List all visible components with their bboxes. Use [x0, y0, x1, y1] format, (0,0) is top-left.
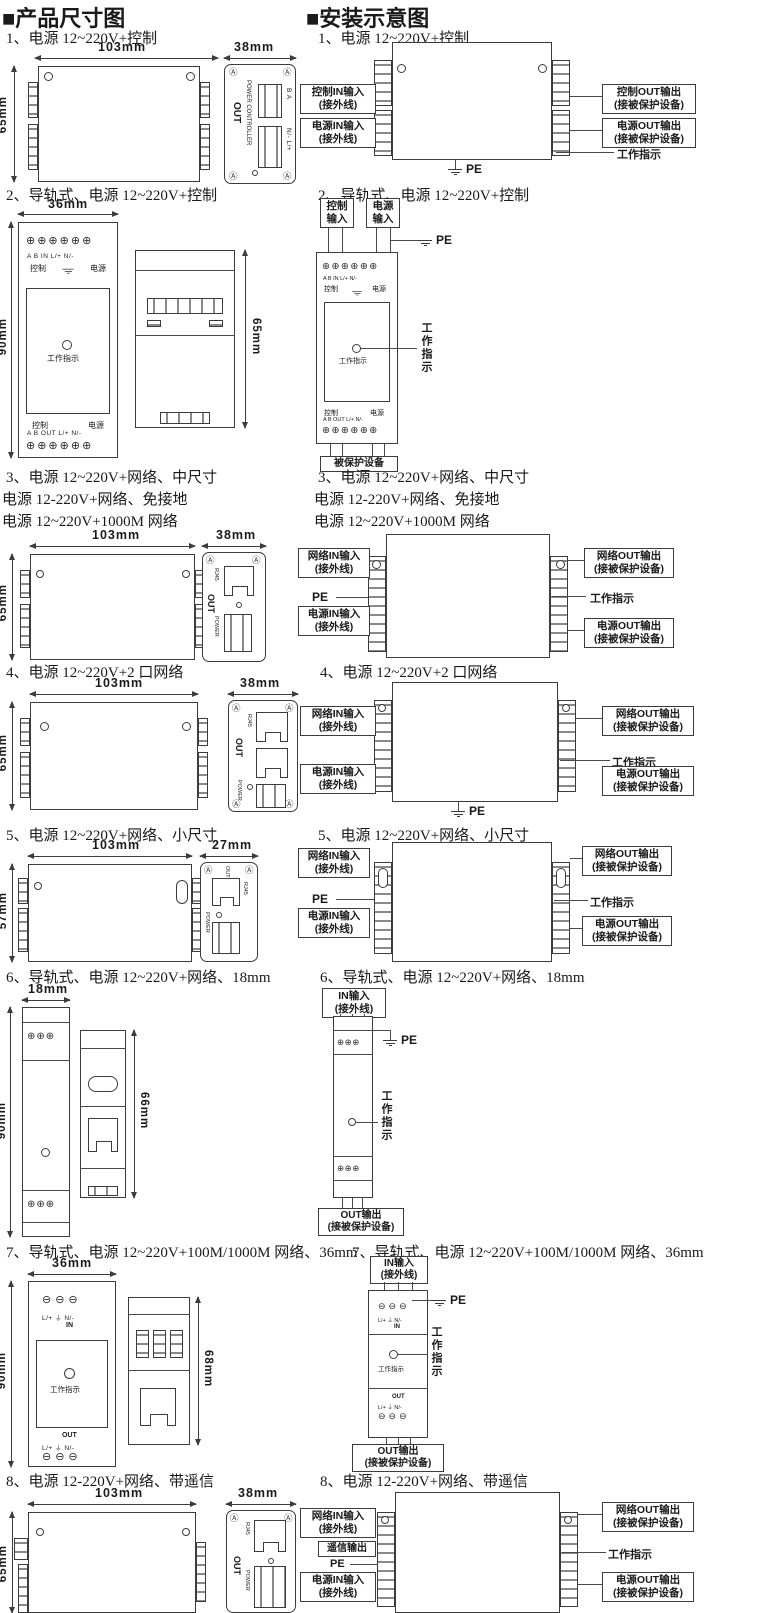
s8-power-block [254, 1566, 286, 1608]
pe-ground-icon [448, 169, 462, 177]
s3-left-title: 3、电源 12~220V+网络、中尺寸 [6, 466, 217, 487]
connector-line [350, 1564, 377, 1565]
s4-corner-screw-icon: Ⓐ [232, 704, 241, 713]
s1-corner-screw-icon: Ⓐ [283, 172, 292, 181]
s2-screw-row: ⊕⊕⊕⊕⊕⊕ [26, 236, 93, 247]
s2-pwr-label: 电源 [372, 284, 386, 294]
callout-ctrl-in: 控制IN输入 (接外线) [300, 84, 376, 114]
s3-right-title3: 电源 12~220V+1000M 网络 [314, 510, 490, 531]
callout-pwr-input: 电源输入 [366, 198, 400, 228]
s1-left-terminal-plate [28, 124, 38, 170]
s4-mount-hole [182, 722, 191, 731]
s8-dim-side-line [226, 1504, 296, 1505]
s6-side-band [80, 1168, 126, 1169]
callout-text: (接被保护设备) [585, 861, 669, 874]
callout-text: 电源OUT输出 [605, 120, 693, 133]
s3-dim-height-line [12, 554, 13, 660]
callout-pwr-in: 电源IN输入 (接外线) [298, 606, 370, 636]
s1-right-terminal-plate [200, 82, 210, 118]
s6-dim-height-label: 90mm [0, 1102, 8, 1139]
s4-install-device [392, 682, 558, 802]
s2-front-panel [26, 288, 110, 414]
s1-led [252, 170, 258, 176]
callout-text: 电源OUT输出 [587, 620, 671, 633]
s2-work-indicator-label: 工作指示 [339, 356, 367, 366]
callout-text: 电源IN输入 [303, 120, 373, 133]
s5-led [216, 912, 222, 918]
s7-dip-switch [136, 1330, 149, 1358]
callout-text: 网络OUT输出 [587, 550, 671, 563]
s2-side-port [209, 320, 223, 327]
callout-text: (接外线) [301, 563, 367, 576]
s8-telemetry-block [14, 1538, 28, 1560]
callout-text: 网络IN输入 [301, 550, 367, 563]
pe-label: PE [469, 804, 485, 818]
s2-led [62, 340, 72, 350]
s4-install-left-plate [374, 700, 392, 792]
s7-terminal-row-label: L/+ ⏚ N/- [42, 1312, 75, 1322]
s6-led [41, 1148, 50, 1157]
callout-text: (接被保护设备) [355, 1458, 441, 1470]
pe-label: PE [312, 590, 328, 604]
s6-screw-row: ⊕⊕⊕ [27, 1032, 55, 1042]
s8-out-label: OUT [232, 1556, 242, 1575]
callout-text: (接外线) [303, 99, 373, 112]
s6-side-band [80, 1106, 126, 1107]
callout-text: (接被保护设备) [585, 931, 669, 944]
callout-text: (接外线) [303, 1523, 373, 1536]
wire [352, 1198, 353, 1208]
s7-dip-switch [153, 1330, 166, 1358]
callout-net-out: 网络OUT输出 (接被保护设备) [602, 706, 694, 736]
s2-screw-row: ⊕⊕⊕⊕⊕⊕ [322, 426, 379, 436]
connector-line [570, 858, 582, 859]
s1-terminal-block [258, 126, 282, 168]
connector-line [562, 1552, 606, 1553]
s6-right-title: 6、导轨式、电源 12~220V+网络、18mm [320, 966, 585, 987]
s3-work-indicator-label: 工作指示 [590, 590, 634, 606]
s8-left-terminal-plate [18, 1564, 28, 1613]
s8-power-label: POWER [244, 1570, 250, 1591]
s6-din-clip [88, 1186, 118, 1196]
s4-rj45-label: RJ45 [246, 714, 252, 727]
s4-corner-screw-icon: Ⓐ [232, 800, 241, 809]
callout-text: 电源IN输入 [303, 1574, 373, 1587]
s7-dip-switch [170, 1330, 183, 1358]
wire [342, 228, 343, 252]
s3-left-title2: 电源 12-220V+网络、免接地 [2, 488, 188, 509]
wire [362, 1198, 363, 1208]
s6-band [22, 1222, 70, 1223]
s7-work-indicator-label: 工作指示 [378, 1363, 404, 1373]
wire [330, 444, 331, 456]
s3-rj45-port [224, 566, 254, 596]
s8-install-device [395, 1492, 560, 1613]
s2-work-indicator-label: 工作指示 [47, 353, 79, 364]
callout-text: (接被保护设备) [587, 563, 671, 576]
callout-text: (接被保护设备) [605, 721, 691, 734]
s4-power-block [256, 784, 286, 808]
s1-top-block-label: B A [285, 88, 292, 100]
s2-pwr-label: 电源 [88, 420, 104, 431]
s5-work-indicator-label: 工作指示 [590, 894, 634, 910]
s3-install-hole [372, 560, 381, 569]
s7-screw-row: ⊖⊖⊖ [42, 1295, 82, 1306]
s7-terminal-row-label: L/+ ⏚ N/- [378, 1316, 402, 1324]
s1-install-hole [397, 64, 406, 73]
s2-pwr-label: 电源 [370, 408, 384, 418]
s6-band [22, 1060, 70, 1061]
s1-front-view [38, 66, 200, 182]
s8-install-right-plate [560, 1512, 578, 1607]
wire [384, 1282, 385, 1290]
s6-screw-row: ⊕⊕⊕ [337, 1038, 360, 1047]
callout-text: 网络IN输入 [301, 850, 367, 863]
s4-install-hole [562, 704, 570, 712]
s3-power-block [224, 614, 252, 652]
callout-text: 网络IN输入 [303, 708, 373, 721]
callout-pwr-out: 电源OUT输出 (接被保护设备) [602, 766, 694, 796]
callout-ctrl-input: 控制输入 [320, 198, 354, 228]
callout-net-out: 网络OUT输出 (接被保护设备) [582, 846, 672, 876]
callout-text: (接被保护设备) [605, 781, 691, 794]
s1-terminal-block [258, 84, 282, 118]
s8-right-terminal-plate [196, 1542, 206, 1602]
connector-line [570, 130, 602, 131]
connector-line [560, 760, 610, 761]
callout-text: 电源IN输入 [301, 910, 367, 923]
s4-left-terminal-plate [20, 718, 30, 746]
connector-line [570, 928, 582, 929]
connector-line [576, 718, 602, 719]
s3-corner-screw-icon: Ⓐ [252, 556, 261, 565]
s2-terminal-row-label: A B OUT L/+ N/- [27, 430, 82, 437]
callout-text: (接外线) [303, 779, 373, 792]
callout-telemetry-out: 遥信输出 [318, 1541, 376, 1557]
s7-dim-width-label: 36mm [52, 1256, 92, 1270]
s1-mount-hole [44, 72, 53, 81]
callout-text: 电源OUT输出 [605, 1574, 691, 1587]
callout-text: 电源IN输入 [303, 766, 373, 779]
s7-dim-height-label: 90mm [0, 1352, 8, 1389]
s2-dim-side-line [245, 250, 246, 428]
s8-rj45-port [254, 1520, 286, 1552]
connector-line [568, 630, 584, 631]
s4-right-title: 4、电源 12~220V+2 口网络 [320, 661, 497, 682]
s6-install-band [333, 1180, 373, 1181]
s1-dim-width-line [35, 58, 218, 59]
s2-left-title: 2、导轨式、电源 12~220V+控制 [6, 184, 217, 205]
s5-mount-slot [176, 880, 188, 904]
callout-pwr-out: 电源OUT输出 (接被保护设备) [584, 618, 674, 648]
callout-text: 电源OUT输出 [585, 918, 669, 931]
s4-right-terminal-plate [198, 718, 208, 746]
s8-install-hole [564, 1516, 572, 1524]
s7-dim-height-line [11, 1281, 12, 1467]
s4-dim-width-label: 103mm [95, 676, 143, 690]
s5-mount-hole [34, 882, 42, 890]
pe-stem [458, 802, 459, 811]
callout-text: 网络OUT输出 [585, 848, 669, 861]
s6-dim-side-label: 66mm [138, 1092, 150, 1129]
s3-mount-hole [36, 570, 44, 578]
s1-out-label: OUT [231, 102, 242, 123]
pe-ground-icon [432, 1300, 446, 1308]
s8-install-left-plate [377, 1512, 395, 1607]
s2-side-port [147, 320, 161, 327]
s5-front-view [28, 864, 192, 962]
s2-dim-width-line [18, 214, 118, 215]
s6-rj45-port [88, 1118, 118, 1152]
s2-din-clip [160, 412, 210, 424]
callout-text: (接被保护设备) [605, 99, 693, 112]
s8-front-view [28, 1512, 196, 1613]
s3-left-terminal-plate [20, 604, 30, 648]
s5-dim-side-label: 27mm [212, 838, 252, 852]
s1-install-left-plate [374, 60, 392, 106]
s8-mount-hole [182, 1528, 190, 1536]
s2-side-band [135, 270, 235, 271]
s1-install-hole [538, 64, 547, 73]
connector-line [556, 152, 614, 153]
pe-label: PE [312, 892, 328, 906]
s7-side-band [128, 1314, 190, 1315]
s8-dim-width-line [28, 1504, 196, 1505]
connector-line [361, 348, 417, 349]
s2-dim-height-line [11, 222, 12, 458]
s5-out-label: OUT [224, 866, 230, 878]
s1-install-device [392, 42, 552, 160]
callout-text: 网络IN输入 [303, 1510, 373, 1523]
s3-install-device [386, 534, 550, 658]
pe-ground-icon [451, 811, 465, 819]
s2-terminal-row-label: A B OUT L/+ N/- [323, 417, 363, 423]
wire [384, 444, 385, 456]
s8-work-indicator-label: 工作指示 [608, 1546, 652, 1562]
s1-corner-screw-icon: Ⓐ [229, 172, 238, 181]
s4-dim-side-line [228, 694, 298, 695]
s2-dim-height-label: 90mm [0, 318, 9, 355]
callout-pwr-in: 电源IN输入 (接外线) [300, 118, 376, 148]
callout-text: (接外线) [303, 1587, 373, 1600]
pe-label: PE [450, 1293, 466, 1307]
callout-text: OUT输出 [355, 1446, 441, 1458]
s5-corner-screw-icon: Ⓐ [204, 866, 213, 875]
s1-dim-height-line [14, 66, 15, 182]
connector-line [554, 900, 588, 901]
s4-led [247, 784, 253, 790]
s8-dim-side-label: 38mm [238, 1486, 278, 1500]
s8-right-title: 8、电源 12-220V+网络、带遥信 [320, 1470, 528, 1491]
wire [328, 228, 329, 252]
s5-power-label: POWER [204, 912, 210, 933]
connector-line [356, 1122, 378, 1123]
connector-line [578, 1514, 602, 1515]
s1-work-indicator-label: 工作指示 [617, 146, 661, 162]
callout-text: 网络OUT输出 [605, 708, 691, 721]
s6-dim-height-line [10, 1007, 11, 1237]
s3-led [236, 602, 242, 608]
s3-dim-side-line [202, 546, 266, 547]
s7-screw-row: ⊖⊖⊖ [378, 1302, 410, 1311]
s4-install-hole [378, 704, 386, 712]
callout-text: (接被保护设备) [605, 1517, 691, 1530]
callout-net-in: 网络IN输入 (接外线) [298, 848, 370, 878]
s6-screw-row: ⊕⊕⊕ [337, 1164, 360, 1173]
s4-mount-hole [40, 722, 49, 731]
s3-dim-height-label: 65mm [0, 584, 9, 621]
s7-install-band [368, 1388, 428, 1389]
connector-line [336, 899, 374, 900]
callout-net-out: 网络OUT输出 (接被保护设备) [584, 548, 674, 578]
s1-install-right-plate [552, 110, 570, 156]
wire [372, 444, 373, 456]
s5-power-block [212, 922, 240, 954]
s2-screw-row: ⊕⊕⊕⊕⊕⊕ [322, 262, 379, 272]
callout-in-in: IN输入 (接外线) [322, 988, 386, 1018]
s5-install-slot [556, 868, 566, 888]
s7-dim-side-line [198, 1297, 199, 1445]
callout-pwr-out: 电源OUT输出 (接被保护设备) [582, 916, 672, 946]
s2-ctrl-label: 控制 [30, 263, 46, 274]
s2-dim-width-label: 36mm [48, 197, 88, 211]
s6-install-band [333, 1030, 373, 1031]
s3-install-hole [556, 560, 565, 569]
s1-corner-screw-icon: Ⓐ [283, 68, 292, 77]
callout-text: (接外线) [325, 1003, 383, 1016]
s7-terminal-row-label: L/+ ⏚ N/- [378, 1403, 402, 1411]
callout-pwr-in: 电源IN输入 (接外线) [298, 908, 370, 938]
s7-out-label: OUT [62, 1432, 77, 1439]
callout-text: (接外线) [301, 863, 367, 876]
connector-line [398, 1354, 428, 1355]
callout-pwr-out: 电源OUT输出 (接被保护设备) [602, 118, 696, 148]
s7-in-label: IN [66, 1322, 73, 1329]
s6-band [22, 1190, 70, 1191]
s2-ctrl-label: 控制 [324, 284, 338, 294]
callout-text: (接外线) [301, 923, 367, 936]
s3-front-view [30, 554, 195, 660]
s7-work-indicator-label: 工作指示 [50, 1384, 80, 1395]
callout-text: (接外线) [373, 1270, 425, 1282]
s1-install-left-plate [374, 110, 392, 156]
s1-power-controller-label: POWER CONTROLLER [245, 80, 251, 145]
wire [398, 1282, 399, 1290]
callout-text: (接外线) [301, 621, 367, 634]
callout-net-in: 网络IN输入 (接外线) [300, 1508, 376, 1538]
s3-install-left-plate [368, 556, 386, 652]
s3-corner-screw-icon: Ⓐ [206, 556, 215, 565]
s6-dim-width-label: 18mm [28, 982, 68, 996]
s8-dim-height-label: 65mm [0, 1545, 9, 1582]
s6-dim-side-line [134, 1030, 135, 1198]
s2-pwr-label: 电源 [90, 263, 106, 274]
s1-right-terminal-plate [200, 124, 210, 170]
s5-rj45-label: RJ45 [242, 882, 248, 895]
s8-dim-width-label: 103mm [95, 1486, 143, 1500]
pe-label: PE [330, 1558, 345, 1570]
connector-line [578, 1584, 602, 1585]
callout-text: (接被保护设备) [605, 133, 693, 146]
s4-left-terminal-plate [20, 752, 30, 798]
connector-line [552, 596, 586, 597]
s2-side-band [135, 335, 235, 336]
callout-text: OUT输出 [321, 1210, 401, 1222]
wire [412, 1282, 413, 1290]
s7-led [64, 1368, 75, 1379]
s7-dim-side-label: 68mm [202, 1350, 214, 1387]
spec-sheet-page: ■产品尺寸图 ■安装示意图 1、电源 12~220V+控制 103mm 38mm… [0, 0, 774, 1613]
s8-dim-height-line [12, 1512, 13, 1613]
callout-out-out: OUT输出 (接被保护设备) [352, 1444, 444, 1472]
s6-side-view [80, 1030, 126, 1198]
s6-band [22, 1022, 70, 1023]
s4-dim-side-label: 38mm [240, 676, 280, 690]
s5-dim-height-label: 57mm [0, 892, 9, 929]
s8-corner-screw-icon: Ⓐ [230, 1514, 239, 1523]
ground-icon [352, 291, 362, 297]
s2-terminal-row-label: A B IN L/+ N/- [27, 253, 74, 260]
callout-net-out: 网络OUT输出 (接被保护设备) [602, 1502, 694, 1532]
callout-text: (接被保护设备) [321, 1222, 401, 1234]
s7-screw-row: ⊖⊖⊖ [42, 1452, 82, 1463]
s2-work-callout-vertical: 工作指示 [418, 322, 434, 374]
wire [342, 444, 343, 456]
s3-dim-side-label: 38mm [216, 528, 256, 542]
s6-install-led [348, 1118, 356, 1126]
s1-bot-block-label: N/- L/+ [285, 128, 292, 151]
s3-rj45-label: RJ45 [213, 568, 219, 581]
s5-dim-height-line [12, 864, 13, 962]
s7-side-band [128, 1370, 190, 1371]
pe-label: PE [401, 1033, 417, 1047]
s5-dim-width-line [28, 856, 192, 857]
s3-out-label: OUT [206, 594, 216, 613]
s3-mount-hole [182, 570, 190, 578]
connector-line [336, 597, 368, 598]
s3-left-terminal-plate [20, 570, 30, 598]
callout-text: (接被保护设备) [587, 633, 671, 646]
s8-led [268, 1558, 274, 1564]
s4-power-label: POWER [236, 780, 242, 801]
s8-mount-hole [36, 1528, 44, 1536]
callout-ctrl-out: 控制OUT输出 (接被保护设备) [602, 84, 696, 114]
callout-text: (接外线) [303, 721, 373, 734]
connector-line [390, 240, 418, 241]
s4-right-terminal-plate [198, 752, 208, 798]
s7-out-label: OUT [392, 1394, 405, 1400]
callout-net-in: 网络IN输入 (接外线) [298, 548, 370, 578]
pe-stem [455, 160, 456, 169]
s4-dim-height-line [12, 702, 13, 810]
s2-terminal-row-label: A B IN L/+ N/- [323, 276, 357, 282]
s5-left-terminal-plate [18, 908, 28, 952]
callout-out-out: OUT输出 (接被保护设备) [318, 1208, 404, 1236]
callout-pwr-in: 电源IN输入 (接外线) [300, 764, 376, 794]
s1-dim-width-label: 103mm [98, 40, 146, 54]
s1-dim-side-label: 38mm [234, 40, 274, 54]
s5-dim-width-label: 103mm [92, 838, 140, 852]
s1-dim-side-line [224, 58, 296, 59]
callout-text: (接外线) [303, 133, 373, 146]
s5-dim-side-line [200, 856, 258, 857]
s5-install-device [392, 842, 552, 962]
s6-install-band [333, 1156, 373, 1157]
pe-stem [390, 1030, 391, 1040]
s5-rj45-port [212, 878, 240, 906]
callout-text: 电源OUT输出 [605, 768, 691, 781]
s6-side-slot [88, 1076, 118, 1092]
